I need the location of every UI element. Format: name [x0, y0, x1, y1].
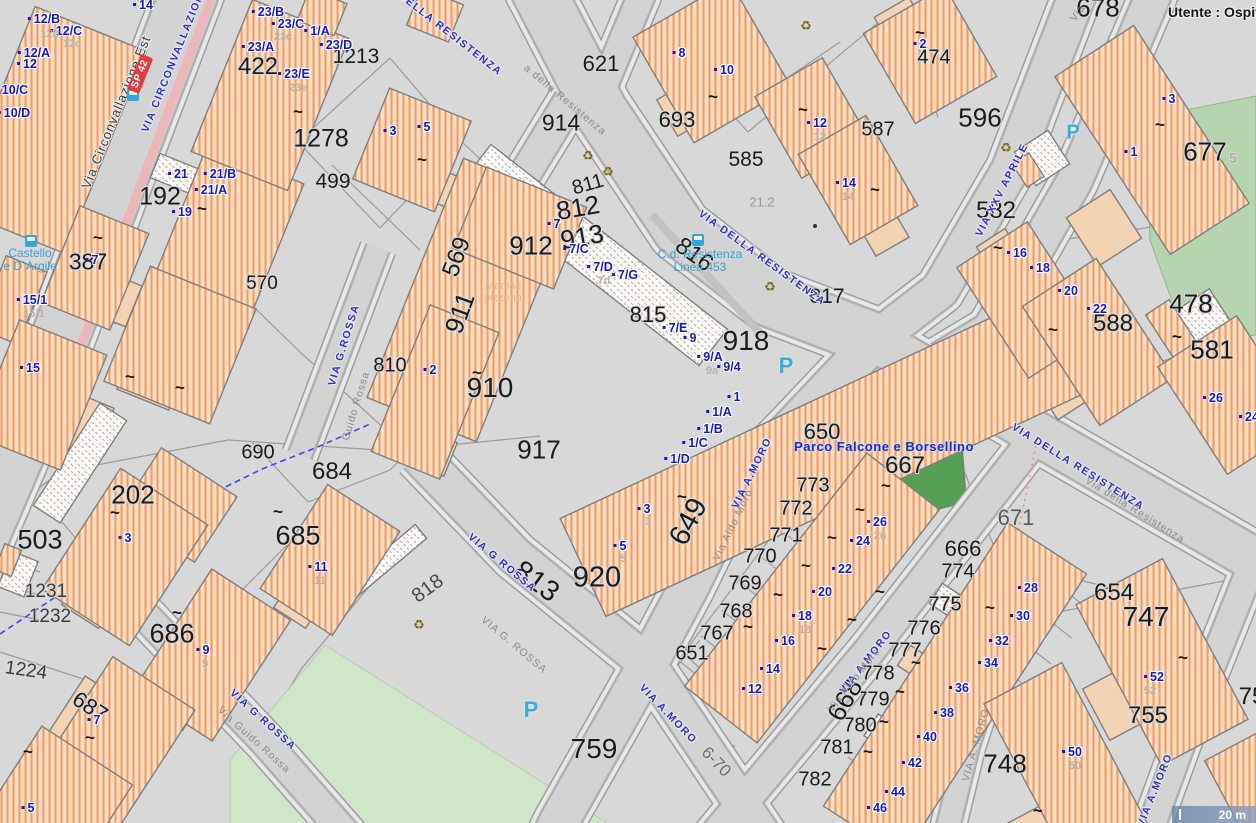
map-base-layers [0, 0, 1256, 823]
user-session-label: Utente : Ospite [1168, 4, 1256, 20]
map-canvas[interactable]: 4221213127849919238757056991191481181291… [0, 0, 1256, 823]
building-footprint [633, 0, 791, 143]
scale-bar: 20 m [1172, 806, 1256, 823]
scale-label: 20 m [1219, 808, 1246, 822]
building-footprint [407, 0, 464, 42]
scale-tick [1179, 809, 1181, 820]
